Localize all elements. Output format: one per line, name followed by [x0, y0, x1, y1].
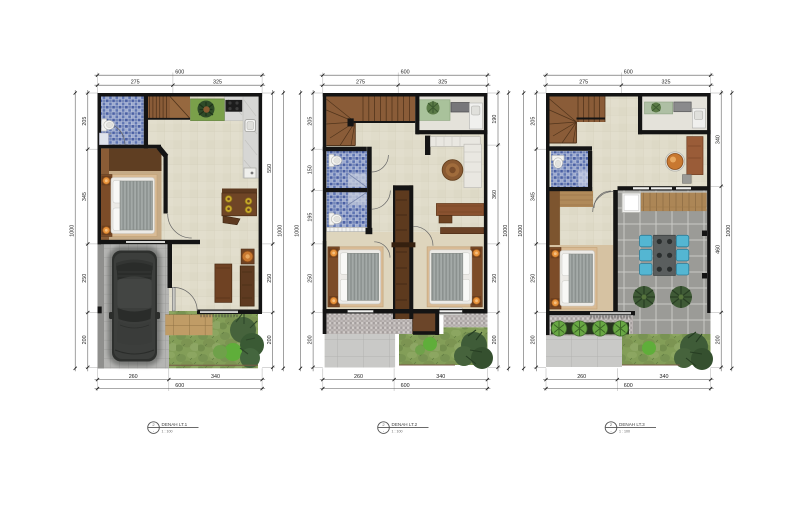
svg-text:260: 260 [129, 374, 138, 380]
svg-text:600: 600 [175, 69, 184, 75]
svg-text:1000: 1000 [726, 225, 732, 237]
svg-text:205: 205 [82, 117, 88, 126]
svg-text:195: 195 [307, 213, 313, 222]
svg-text:345: 345 [82, 192, 88, 201]
svg-text:200: 200 [492, 335, 498, 344]
svg-text:600: 600 [401, 69, 410, 75]
svg-text:200: 200 [715, 335, 721, 344]
svg-text:205: 205 [531, 117, 537, 126]
svg-text:275: 275 [356, 79, 365, 85]
svg-text:600: 600 [175, 383, 184, 389]
svg-text:1 : 100: 1 : 100 [392, 429, 403, 433]
svg-text:1 : 100: 1 : 100 [619, 429, 630, 433]
svg-text:1000: 1000 [518, 225, 524, 237]
svg-text:340: 340 [660, 374, 669, 380]
svg-text:340: 340 [715, 135, 721, 144]
svg-text:200: 200 [82, 335, 88, 344]
svg-text:1000: 1000 [278, 225, 284, 237]
svg-text:460: 460 [715, 245, 721, 254]
svg-text:DENAH LT.2: DENAH LT.2 [392, 422, 418, 427]
svg-text:550: 550 [267, 164, 273, 173]
svg-text:200: 200 [267, 335, 273, 344]
svg-text:190: 190 [492, 115, 498, 124]
svg-text:325: 325 [213, 79, 222, 85]
svg-text:325: 325 [438, 79, 447, 85]
svg-text:340: 340 [211, 374, 220, 380]
svg-text:150: 150 [307, 165, 313, 174]
svg-text:340: 340 [436, 374, 445, 380]
svg-text:200: 200 [307, 335, 313, 344]
svg-text:250: 250 [307, 274, 313, 283]
svg-text:DENAH LT.3: DENAH LT.3 [619, 422, 645, 427]
svg-text:275: 275 [131, 79, 140, 85]
svg-text:250: 250 [531, 274, 537, 283]
svg-text:1 : 100: 1 : 100 [162, 429, 173, 433]
svg-text:325: 325 [662, 79, 671, 85]
svg-text:260: 260 [577, 374, 586, 380]
svg-text:1000: 1000 [503, 225, 509, 237]
svg-text:600: 600 [624, 69, 633, 75]
svg-text:250: 250 [82, 274, 88, 283]
svg-text:250: 250 [492, 274, 498, 283]
svg-text:600: 600 [624, 383, 633, 389]
svg-text:200: 200 [531, 335, 537, 344]
svg-text:600: 600 [401, 383, 410, 389]
svg-text:260: 260 [354, 374, 363, 380]
svg-text:250: 250 [267, 274, 273, 283]
svg-text:345: 345 [531, 192, 537, 201]
svg-text:1000: 1000 [295, 225, 301, 237]
svg-text:DENAH LT.1: DENAH LT.1 [162, 422, 188, 427]
svg-text:275: 275 [579, 79, 588, 85]
svg-text:205: 205 [307, 117, 313, 126]
svg-text:360: 360 [492, 190, 498, 199]
svg-text:1000: 1000 [69, 225, 75, 237]
